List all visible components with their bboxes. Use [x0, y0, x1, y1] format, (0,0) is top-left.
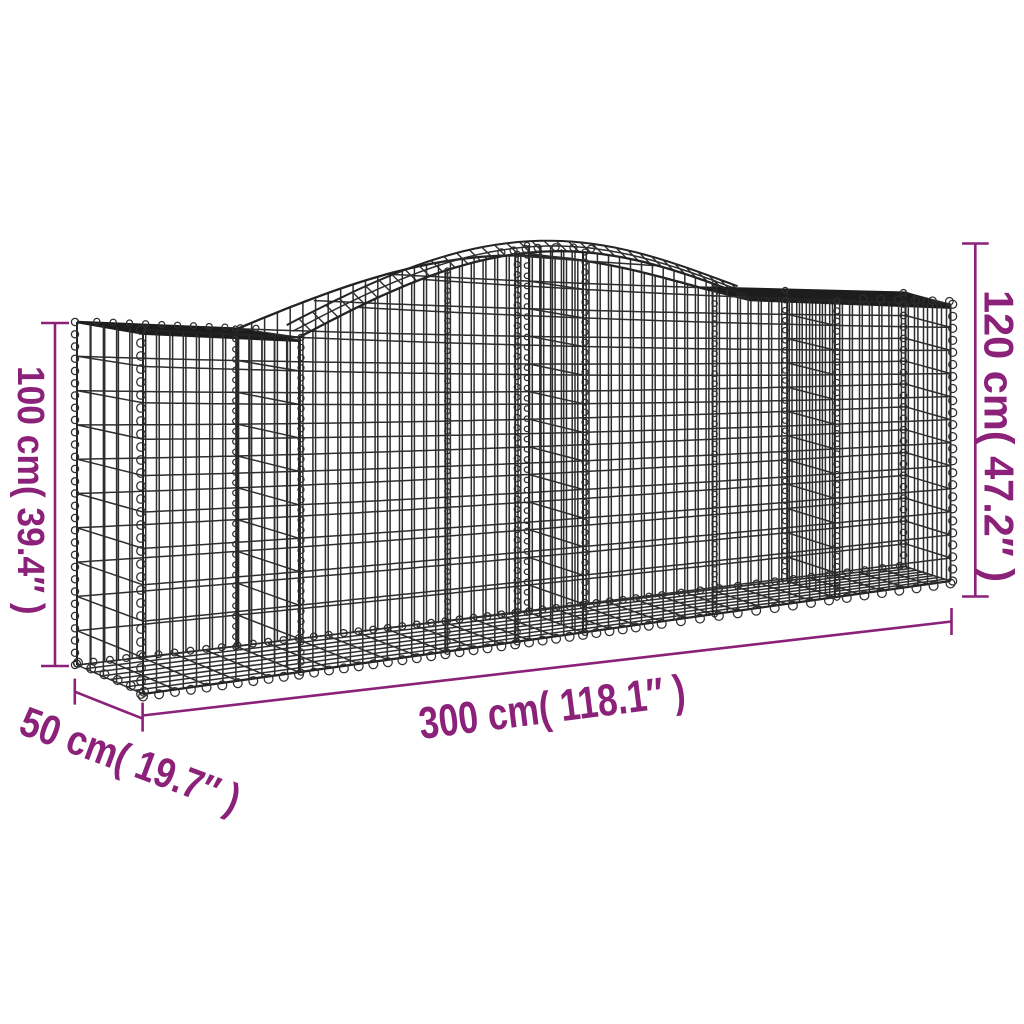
svg-text:100 cm( 39.4″ ): 100 cm( 39.4″ ) — [10, 366, 52, 615]
svg-text:120 cm( 47.2″ ): 120 cm( 47.2″ ) — [976, 290, 1023, 582]
